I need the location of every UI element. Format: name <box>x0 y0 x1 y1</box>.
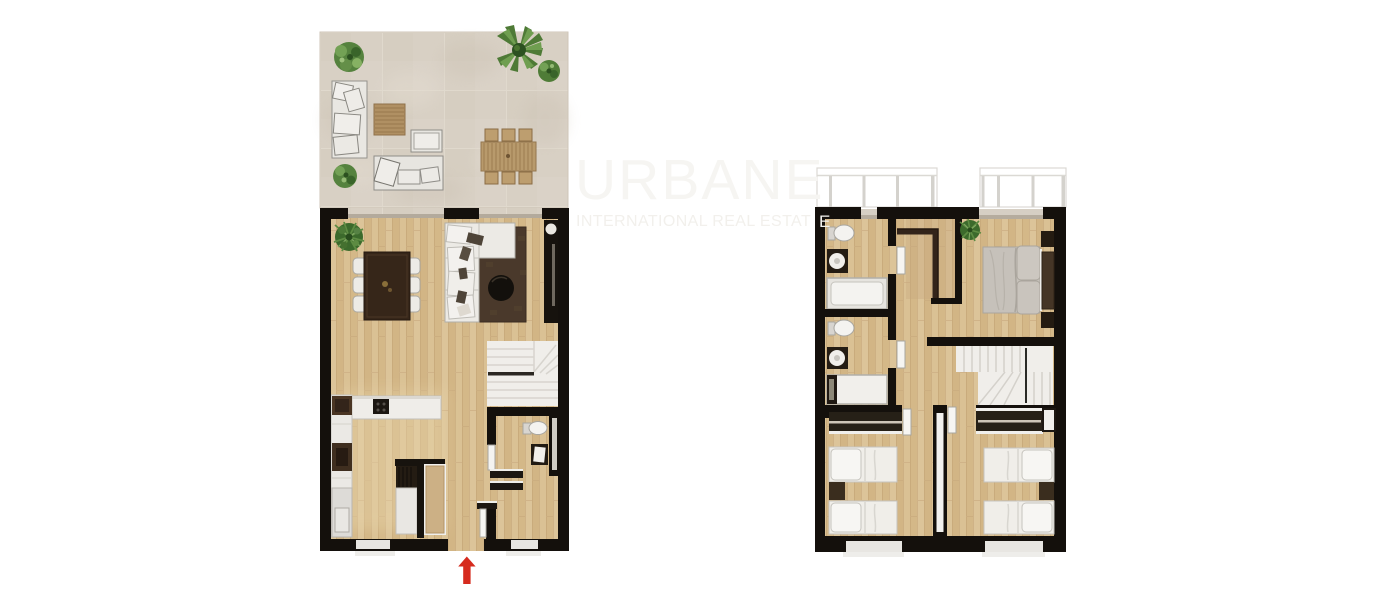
svg-text:INTERNATIONAL REAL ESTAT: INTERNATIONAL REAL ESTAT <box>576 213 811 230</box>
svg-text:E: E <box>819 212 830 231</box>
svg-text:URBANE: URBANE <box>575 148 825 212</box>
